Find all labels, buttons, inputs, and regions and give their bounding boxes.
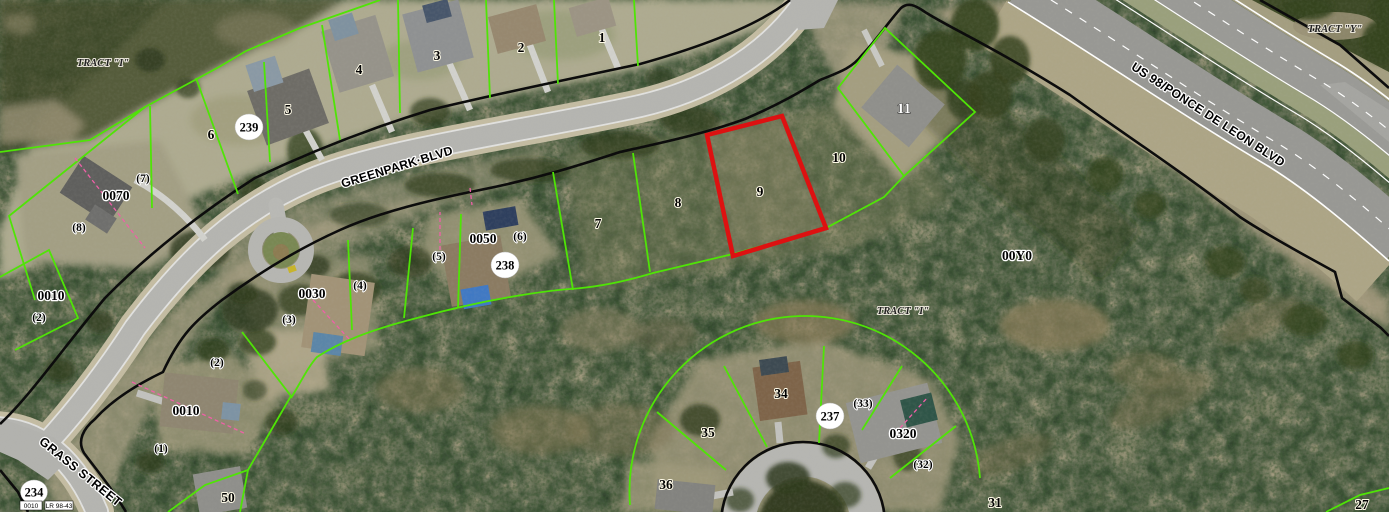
svg-text:(3): (3) — [282, 314, 296, 326]
svg-text:0030: 0030 — [299, 286, 326, 301]
svg-text:3: 3 — [434, 48, 441, 63]
svg-text:00Y0: 00Y0 — [1002, 248, 1032, 263]
svg-text:0050: 0050 — [470, 231, 497, 246]
svg-text:35: 35 — [701, 425, 715, 440]
svg-text:(8): (8) — [72, 222, 86, 234]
svg-text:1: 1 — [599, 30, 606, 45]
svg-text:TRACT "I": TRACT "I" — [77, 58, 129, 69]
svg-text:0010: 0010 — [24, 503, 39, 510]
svg-text:(2): (2) — [210, 357, 224, 369]
svg-text:(5): (5) — [432, 251, 446, 263]
svg-text:27: 27 — [1355, 497, 1369, 512]
svg-text:50: 50 — [221, 490, 235, 505]
svg-text:7: 7 — [595, 216, 602, 231]
svg-text:TRACT "Y": TRACT "Y" — [1308, 24, 1363, 35]
svg-text:0070: 0070 — [103, 188, 130, 203]
svg-text:0010: 0010 — [173, 403, 200, 418]
svg-text:9: 9 — [757, 184, 764, 199]
svg-text:(7): (7) — [136, 173, 150, 185]
svg-text:8: 8 — [675, 195, 682, 210]
svg-text:(4): (4) — [353, 280, 367, 292]
svg-text:(1): (1) — [154, 443, 168, 455]
svg-text:0010: 0010 — [38, 288, 65, 303]
svg-text:6: 6 — [208, 127, 215, 142]
svg-text:239: 239 — [240, 121, 259, 135]
svg-text:31: 31 — [988, 495, 1002, 510]
svg-text:10: 10 — [832, 150, 846, 165]
svg-text:TRACT "I": TRACT "I" — [877, 306, 929, 317]
svg-text:11: 11 — [897, 101, 911, 117]
svg-text:0320: 0320 — [890, 426, 917, 441]
svg-text:34: 34 — [774, 386, 788, 401]
svg-text:2: 2 — [518, 40, 525, 55]
svg-text:4: 4 — [356, 62, 363, 77]
svg-text:(6): (6) — [513, 231, 527, 243]
svg-text:(32): (32) — [913, 459, 932, 471]
svg-text:5: 5 — [285, 102, 292, 117]
svg-text:(33): (33) — [853, 398, 872, 410]
svg-text:234: 234 — [25, 486, 45, 500]
svg-text:36: 36 — [659, 477, 673, 492]
svg-text:LR 98-43: LR 98-43 — [46, 503, 73, 510]
svg-text:(2): (2) — [32, 312, 46, 324]
svg-text:237: 237 — [821, 410, 840, 424]
svg-text:238: 238 — [496, 259, 515, 273]
